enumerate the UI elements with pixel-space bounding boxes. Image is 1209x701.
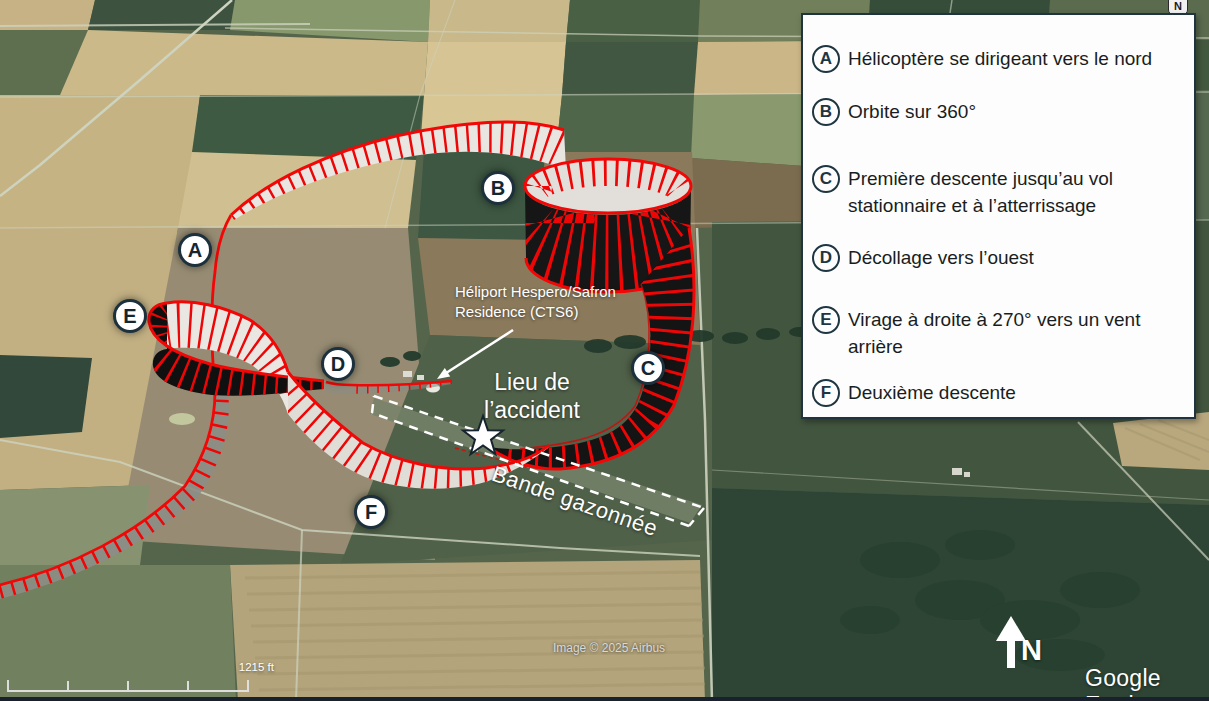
north-label: N <box>1021 634 1042 667</box>
map-marker-b-letter: B <box>491 177 505 200</box>
map-marker-e-letter: E <box>123 305 136 328</box>
map-marker-f-letter: F <box>365 501 377 524</box>
legend-item-c: C Première descente jusqu’au vol station… <box>812 165 1194 219</box>
legend-circle-d: D <box>812 244 840 272</box>
legend-label-f: Deuxième descente <box>848 380 1194 407</box>
map-marker-f: F <box>354 495 388 529</box>
map-marker-c: C <box>631 351 665 385</box>
legend-circle-a: A <box>812 45 840 73</box>
scale-label: 1215 ft <box>198 661 274 673</box>
map-marker-d: D <box>321 347 355 381</box>
map-marker-a-letter: A <box>188 239 202 262</box>
google-earth-watermark: Google Earth <box>1085 665 1209 701</box>
legend-item-e: E Virage à droite à 270° vers un vent ar… <box>812 306 1194 360</box>
map-marker-c-letter: C <box>641 357 655 380</box>
legend-label-c: Première descente jusqu’au vol stationna… <box>848 166 1194 219</box>
legend-label-b: Orbite sur 360° <box>848 99 1194 126</box>
bottom-edge-bar <box>0 697 1209 701</box>
google-earth-figure: A B C D E F Héliport Hespero/Safron Resi… <box>0 0 1209 701</box>
legend-box: A Hélicoptère se dirigeant vers le nord … <box>801 13 1196 419</box>
legend-item-a: A Hélicoptère se dirigeant vers le nord <box>812 45 1194 73</box>
accident-site-label: Lieu de l’accident <box>470 368 594 424</box>
legend-item-f: F Deuxième descente <box>812 379 1194 407</box>
map-marker-b: B <box>481 171 515 205</box>
legend-label-e: Virage à droite à 270° vers un vent arri… <box>848 307 1194 360</box>
legend-circle-e: E <box>812 306 840 334</box>
imagery-credit: Image © 2025 Airbus <box>520 641 698 655</box>
heliport-label: Héliport Hespero/Safron Residence (CTS6) <box>455 282 633 322</box>
legend-circle-c: C <box>812 165 840 193</box>
map-marker-a: A <box>178 233 212 267</box>
map-marker-d-letter: D <box>331 353 345 376</box>
legend-item-b: B Orbite sur 360° <box>812 98 1194 126</box>
legend-label-d: Décollage vers l’ouest <box>848 245 1194 272</box>
legend-item-d: D Décollage vers l’ouest <box>812 244 1194 272</box>
map-marker-e: E <box>113 299 147 333</box>
legend-circle-f: F <box>812 379 840 407</box>
legend-circle-b: B <box>812 98 840 126</box>
legend-label-a: Hélicoptère se dirigeant vers le nord <box>848 46 1194 73</box>
